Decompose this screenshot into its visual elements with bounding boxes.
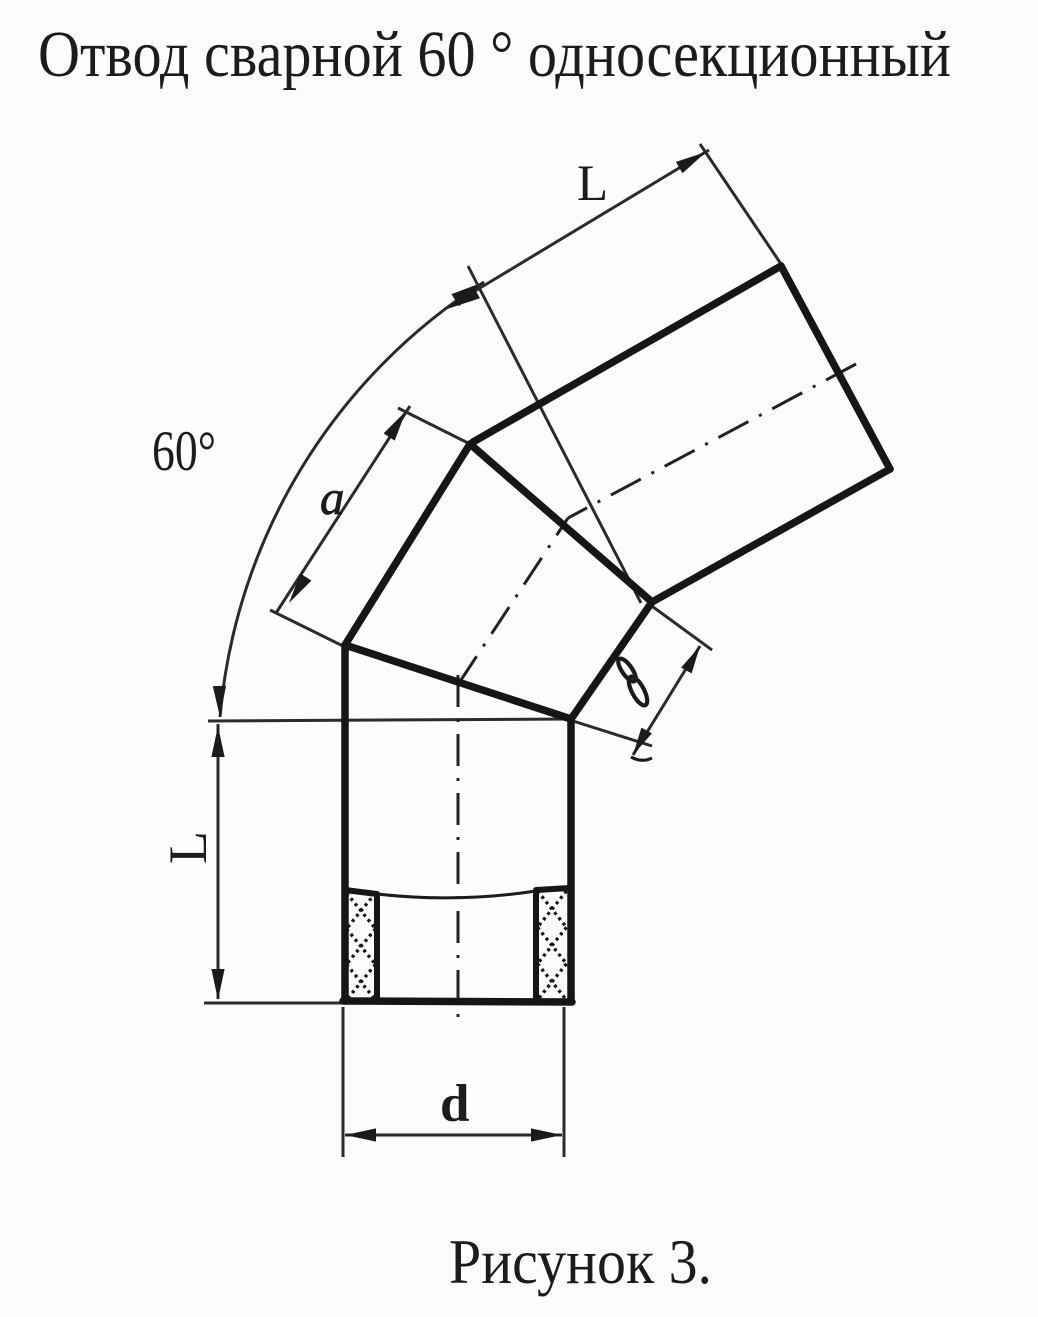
svg-text:d: d bbox=[440, 1075, 469, 1133]
svg-text:a: a bbox=[320, 470, 345, 525]
svg-text:L: L bbox=[577, 156, 608, 212]
svg-text:L: L bbox=[158, 831, 218, 864]
svg-text:Отвод сварной 60 ° односекцион: Отвод сварной 60 ° односекционный bbox=[38, 18, 951, 91]
svg-text:Рисунок 3.: Рисунок 3. bbox=[449, 1227, 712, 1297]
svg-text:60°: 60° bbox=[152, 420, 216, 483]
